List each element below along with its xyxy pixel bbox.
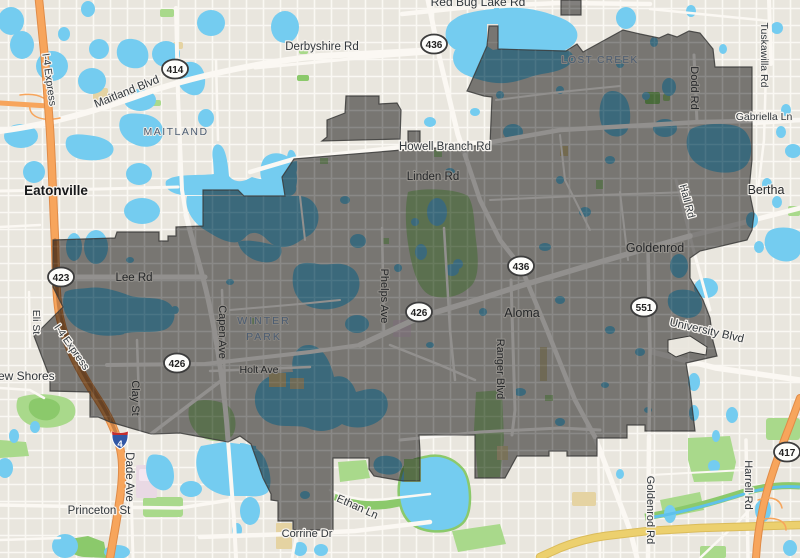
svg-text:WINTER: WINTER bbox=[237, 315, 290, 327]
svg-text:Ranger Blvd: Ranger Blvd bbox=[494, 339, 506, 400]
svg-text:Capen Ave: Capen Ave bbox=[216, 305, 228, 359]
svg-text:Aloma: Aloma bbox=[504, 306, 539, 320]
svg-text:426: 426 bbox=[169, 359, 186, 370]
svg-text:Clay St: Clay St bbox=[129, 380, 141, 415]
svg-text:Holt Ave: Holt Ave bbox=[240, 364, 279, 376]
svg-text:Lee Rd: Lee Rd bbox=[115, 272, 152, 284]
svg-text:Tuskawilla Rd: Tuskawilla Rd bbox=[758, 23, 770, 88]
svg-text:Phelps Ave: Phelps Ave bbox=[378, 269, 390, 324]
svg-text:Goldenrod Rd: Goldenrod Rd bbox=[644, 476, 656, 545]
svg-text:Linden Rd: Linden Rd bbox=[407, 171, 459, 183]
svg-text:423: 423 bbox=[53, 273, 70, 284]
svg-text:Derbyshire Rd: Derbyshire Rd bbox=[285, 41, 359, 53]
svg-text:436: 436 bbox=[513, 262, 530, 273]
svg-text:Harrell Rd: Harrell Rd bbox=[742, 460, 754, 510]
svg-text:PARK: PARK bbox=[246, 331, 282, 343]
svg-text:MAITLAND: MAITLAND bbox=[143, 126, 208, 138]
svg-text:Goldenrod: Goldenrod bbox=[626, 241, 684, 255]
svg-text:414: 414 bbox=[167, 65, 184, 76]
svg-text:Bertha: Bertha bbox=[748, 183, 785, 197]
svg-text:Eatonville: Eatonville bbox=[24, 183, 88, 198]
svg-text:Eli St: Eli St bbox=[30, 310, 42, 335]
svg-text:417: 417 bbox=[779, 448, 796, 459]
svg-text:436: 436 bbox=[426, 40, 443, 51]
svg-text:New Shores: New Shores bbox=[0, 369, 55, 383]
svg-text:Red Bug Lake Rd: Red Bug Lake Rd bbox=[431, 0, 526, 9]
svg-text:Corrine Dr: Corrine Dr bbox=[282, 528, 333, 540]
svg-text:426: 426 bbox=[411, 308, 428, 319]
svg-text:Gabriella Ln: Gabriella Ln bbox=[736, 111, 793, 123]
svg-text:Howell Branch Rd: Howell Branch Rd bbox=[399, 141, 491, 153]
svg-text:Dodd Rd: Dodd Rd bbox=[688, 66, 700, 109]
svg-text:4: 4 bbox=[117, 439, 123, 450]
svg-text:Princeton St: Princeton St bbox=[68, 505, 131, 517]
svg-text:LOST CREEK: LOST CREEK bbox=[561, 55, 638, 66]
svg-text:Dade Ave: Dade Ave bbox=[123, 452, 135, 502]
svg-text:551: 551 bbox=[636, 303, 653, 314]
